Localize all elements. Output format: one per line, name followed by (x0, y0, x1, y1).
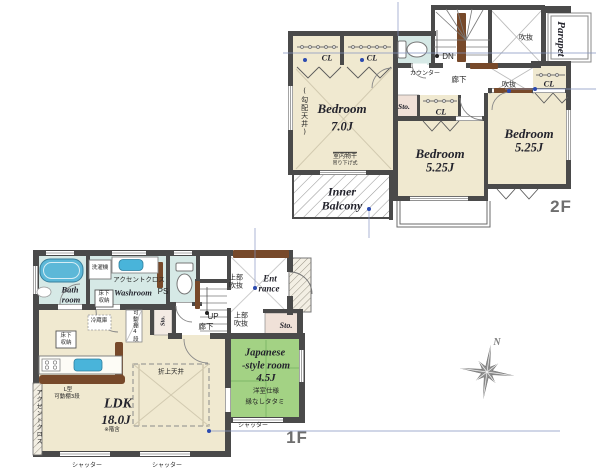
f2-bedroom3-name: Bedroom (504, 127, 553, 141)
f2-counter-label: カウンター (410, 71, 440, 77)
f1-accent-cloth-ldk-label: アクセントクロス (35, 389, 41, 445)
f2-closet-right-label: CL (544, 80, 555, 89)
f2-laundry-label: 室内物干 (333, 152, 357, 160)
f1-jroom-size: 4.5J (256, 373, 275, 385)
floorplan-drawing (0, 0, 600, 472)
f1-jroom-label1: Japanese (245, 347, 285, 358)
kitchen-counter (39, 356, 122, 374)
stove-icon (42, 359, 60, 371)
f1-storage-label: Sto. (280, 322, 293, 330)
f1-underfloor-washroom-label2: 収納 (98, 299, 109, 305)
f1-underfloor-washroom-label1: 床下 (98, 292, 109, 298)
compass-north-label: N (493, 338, 500, 349)
f1-ldk-size: 18.0J (101, 413, 130, 427)
f2-void-mid-label: 吹抜 (502, 81, 516, 88)
f1-bath-label2: room (62, 296, 80, 305)
f1-up-label: UP (207, 313, 218, 321)
f2-toilet-icon (398, 41, 427, 58)
f1-ldk-name: LDK (104, 398, 132, 413)
floorplan-canvas: CL CL (勾配天井) Bedroom 7.0J 室内物干 吊り下げ式 DN … (0, 0, 600, 472)
f2-bedroom2-name: Bedroom (415, 147, 464, 161)
f1-coffered-label: 折上天井 (158, 369, 184, 376)
f1-shelf4-label: 可動棚4段 (131, 310, 137, 343)
f1-shutter-label2: シャッター (152, 463, 182, 469)
f1-shutter-label3: シャッター (238, 423, 268, 429)
f2-laundry-type-label: 吊り下げ式 (332, 161, 357, 166)
f2-closet-center-label: CL (436, 108, 447, 117)
f2-inner-balcony-label1: Inner (328, 186, 356, 199)
f1-ltype-label1: L型 (64, 388, 73, 394)
f1-hallway-label: 廊下 (199, 323, 214, 331)
f2-storage-label: Sto. (398, 103, 410, 111)
f2-bedroom2-size: 5.25J (426, 161, 454, 174)
f2-closet-left1-label: CL (322, 54, 333, 63)
f2-hallway-label: 廊下 (452, 76, 467, 84)
f1-ltype-label2: 可動棚3段 (54, 395, 80, 401)
vanity-sink-icon (112, 257, 158, 273)
sink-icon (74, 359, 102, 371)
f2-sloped-ceiling-label: (勾配天井) (300, 87, 307, 137)
f2-bedroom1-name: Bedroom (317, 102, 366, 116)
f2-floor-label: 2F (550, 198, 572, 216)
f2-eave (397, 201, 490, 227)
f1-underfloor-ldk-label2: 収納 (60, 341, 71, 347)
f1-floor-label: 1F (286, 429, 308, 447)
f1-accent-cloth-washroom-label: アクセントクロス (113, 277, 165, 284)
f2-void-top-label: 吹抜 (519, 34, 533, 41)
f1-upper-void1-label2: 吹抜 (229, 282, 243, 289)
f1-ps-label: PS (158, 288, 169, 296)
f1-jroom-note2: 縁なしタタミ (246, 399, 285, 406)
f2-bedroom3-size: 5.25J (515, 141, 543, 154)
f1-storage-mid-label: Sto. (161, 316, 168, 326)
f1-entrance-label2: rance (259, 284, 280, 293)
f2-parapet-label: Parapet (554, 21, 566, 56)
compass-rose-icon (457, 342, 518, 403)
f1-washer-label: 洗濯機 (92, 266, 109, 272)
f1-fridge-label: 冷蔵庫 (91, 319, 108, 325)
f1-toilet-icon (176, 263, 193, 294)
f2-inner-balcony-label2: Balcony (322, 200, 363, 213)
f2-dn-label: DN (442, 53, 454, 61)
f2-bedroom1-size: 7.0J (331, 120, 353, 133)
f1-washroom-label: Washroom (114, 289, 152, 298)
f2-closet-left2-label: CL (367, 54, 378, 63)
f1-jroom-label2: -style room (242, 360, 290, 371)
f1-underfloor-ldk-label1: 床下 (60, 334, 71, 340)
f1-jroom-note1: 洋室仕様 (253, 388, 279, 395)
f1-shutter-label1: シャッター (72, 463, 102, 469)
f1-bath-label1: Bath (61, 286, 78, 295)
f1-ldk-note: ※階含 (104, 428, 120, 434)
f1-upper-void2-label2: 吹抜 (234, 320, 248, 327)
